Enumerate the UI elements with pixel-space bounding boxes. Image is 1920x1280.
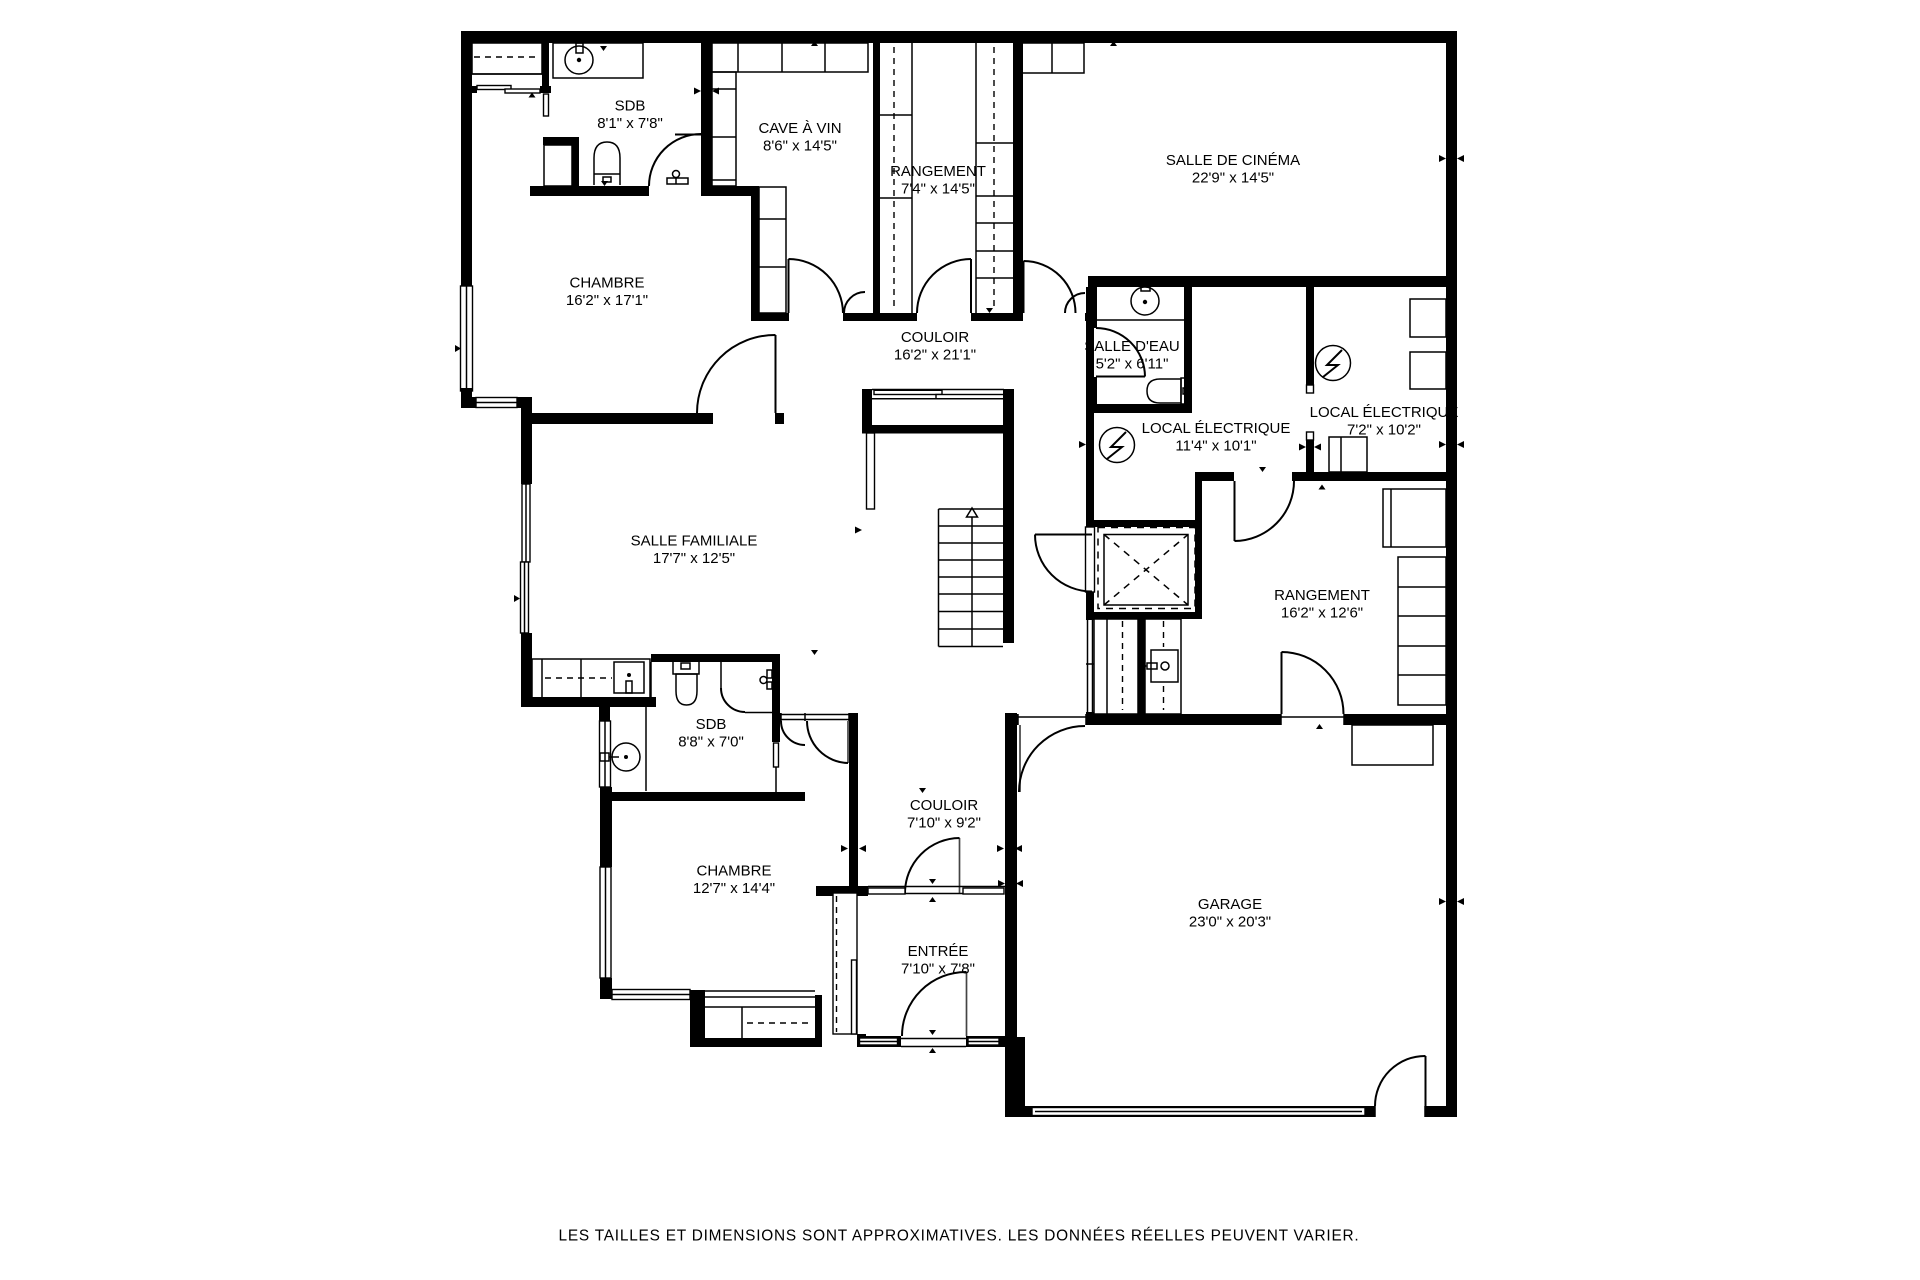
svg-text:ENTRÉE: ENTRÉE [908,943,969,960]
svg-text:SALLE D'EAU: SALLE D'EAU [1084,338,1179,355]
svg-text:7'2" x 10'2": 7'2" x 10'2" [1347,422,1421,439]
svg-text:CHAMBRE: CHAMBRE [569,275,644,292]
svg-text:8'1" x 7'8": 8'1" x 7'8" [597,115,663,132]
svg-text:5'2" x 6'11": 5'2" x 6'11" [1096,356,1169,373]
svg-text:16'2" x 21'1": 16'2" x 21'1" [894,347,976,364]
svg-text:12'7" x 14'4": 12'7" x 14'4" [693,880,775,897]
svg-text:SDB: SDB [696,716,727,733]
svg-text:LOCAL ÉLECTRIQUE: LOCAL ÉLECTRIQUE [1310,404,1459,421]
svg-text:23'0" x 20'3": 23'0" x 20'3" [1189,914,1271,931]
svg-text:LOCAL ÉLECTRIQUE: LOCAL ÉLECTRIQUE [1142,420,1291,437]
svg-text:RANGEMENT: RANGEMENT [1274,587,1370,604]
svg-text:COULOIR: COULOIR [910,797,979,814]
svg-text:CHAMBRE: CHAMBRE [696,863,771,880]
svg-text:RANGEMENT: RANGEMENT [890,163,986,180]
svg-text:7'10" x 9'2": 7'10" x 9'2" [907,815,981,832]
svg-text:17'7" x 12'5": 17'7" x 12'5" [653,550,735,567]
svg-text:COULOIR: COULOIR [901,329,970,346]
svg-text:7'4" x 14'5": 7'4" x 14'5" [901,181,975,198]
svg-text:SALLE FAMILIALE: SALLE FAMILIALE [631,533,758,550]
svg-text:16'2" x 12'6": 16'2" x 12'6" [1281,605,1363,622]
svg-text:SDB: SDB [615,98,646,115]
svg-text:CAVE À VIN: CAVE À VIN [758,120,841,137]
svg-text:8'8" x 7'0": 8'8" x 7'0" [678,734,744,751]
svg-text:GARAGE: GARAGE [1198,896,1262,913]
svg-text:SALLE DE CINÉMA: SALLE DE CINÉMA [1166,152,1300,169]
svg-text:16'2" x 17'1": 16'2" x 17'1" [566,292,648,309]
svg-text:22'9" x 14'5": 22'9" x 14'5" [1192,170,1274,187]
svg-text:11'4" x 10'1": 11'4" x 10'1" [1175,438,1256,455]
svg-text:LES TAILLES ET DIMENSIONS SONT: LES TAILLES ET DIMENSIONS SONT APPROXIMA… [559,1228,1360,1245]
svg-text:7'10" x 7'8": 7'10" x 7'8" [901,961,975,978]
svg-text:8'6" x 14'5": 8'6" x 14'5" [763,138,837,155]
